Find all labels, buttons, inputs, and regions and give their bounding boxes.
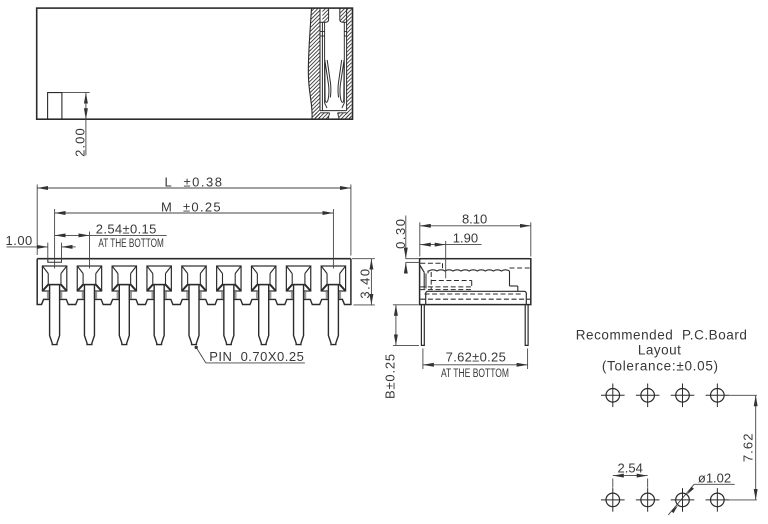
svg-text:1.00: 1.00: [5, 233, 32, 248]
svg-text:8.10: 8.10: [462, 212, 487, 227]
svg-text:2.00: 2.00: [72, 127, 87, 157]
svg-text:B±0.25: B±0.25: [383, 353, 398, 399]
svg-text:0.30: 0.30: [393, 218, 408, 249]
svg-text:AT THE BOTTOM: AT THE BOTTOM: [98, 236, 163, 250]
svg-text:2.54: 2.54: [618, 461, 643, 476]
svg-text:Layout: Layout: [638, 343, 682, 358]
svg-text:PIN 0.70X0.25: PIN 0.70X0.25: [209, 349, 304, 364]
svg-text:7.62: 7.62: [741, 432, 756, 462]
svg-text:(Tolerance:±0.05): (Tolerance:±0.05): [602, 358, 719, 373]
svg-text:Recommended P.C.Board: Recommended P.C.Board: [576, 328, 748, 343]
svg-text:AT THE BOTTOM: AT THE BOTTOM: [441, 366, 509, 380]
svg-text:1.90: 1.90: [453, 231, 478, 246]
svg-text:3.40: 3.40: [358, 267, 373, 298]
svg-text:ø1.02: ø1.02: [698, 470, 731, 485]
svg-text:2.54±0.15: 2.54±0.15: [96, 222, 157, 237]
svg-text:7.62±0.25: 7.62±0.25: [446, 350, 506, 365]
svg-text:L ±0.38: L ±0.38: [165, 175, 224, 190]
svg-text:M ±0.25: M ±0.25: [161, 200, 222, 215]
